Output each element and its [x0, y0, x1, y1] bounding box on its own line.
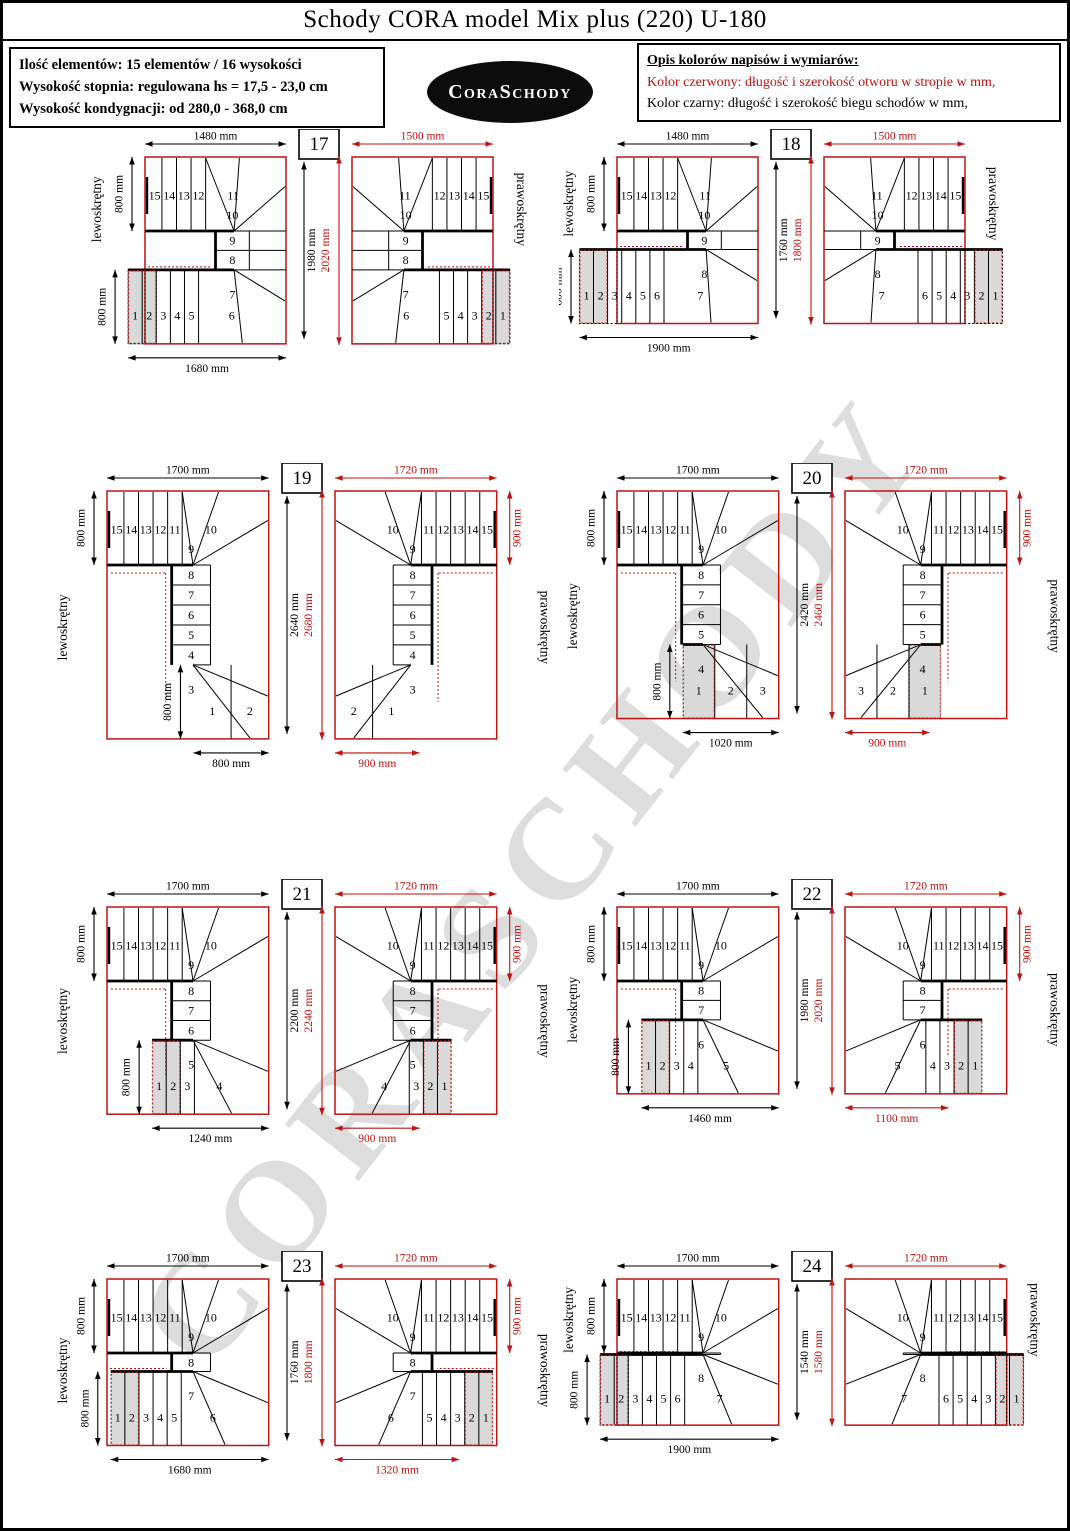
step-number: 8: [229, 253, 235, 267]
stair-group: 1514131211109812345671500 mmprawoskrętny: [824, 131, 1003, 324]
arrowhead: [771, 1263, 779, 1269]
dim-top-black: 1700 mm: [676, 881, 720, 893]
step-number: 14: [976, 522, 988, 536]
arrowhead: [336, 337, 342, 345]
arrowhead: [958, 141, 966, 147]
step-number: 12: [434, 188, 446, 202]
dim-right-red: 900 mm: [512, 925, 524, 963]
arrowhead: [845, 891, 853, 897]
step-number: 13: [140, 1310, 152, 1324]
arrowhead: [145, 141, 153, 147]
arrowhead: [335, 1457, 343, 1463]
step-number: 2: [247, 704, 253, 718]
step-number: 5: [640, 288, 646, 302]
stair-diagram-right-20: 1514131211109876541231720 mm900 mm900 mm…: [839, 463, 1065, 755]
dim-top-red: 1720 mm: [394, 1253, 438, 1265]
step-number: 3: [964, 288, 970, 302]
arrowhead: [319, 1439, 325, 1447]
step-number: 5: [936, 288, 942, 302]
stair-side-label-right: prawoskrętny: [514, 173, 529, 247]
stair-diagram-left-20: 1514131211109876541231700 mm800 mm800 mm…: [559, 463, 785, 755]
arrowhead: [284, 1102, 290, 1110]
step-number: 10: [872, 208, 884, 222]
step-number: 7: [410, 1389, 416, 1403]
step-number: 5: [171, 1410, 177, 1424]
step-number: 11: [679, 1310, 691, 1324]
arrowhead: [829, 712, 835, 720]
dim-left-top: 800 mm: [114, 175, 126, 213]
stair-group: 1514131211109871234561700 mm800 mm800 mm…: [55, 1253, 269, 1477]
step-number: 12: [437, 938, 449, 952]
step-number: 2: [728, 683, 734, 697]
dim-left-top: 800 mm: [76, 1297, 88, 1335]
dim-mid-black: 1540 mm: [799, 1330, 811, 1374]
stair-group: 1514131211109876512341720 mm900 mm900 mm…: [335, 881, 553, 1146]
step-number: 14: [976, 1310, 988, 1324]
stair-side-label-left: lewoskrętny: [561, 1287, 576, 1353]
arrowhead: [112, 270, 118, 278]
dim-top-black: 1700 mm: [676, 1253, 720, 1265]
winder-line: [825, 187, 876, 231]
arrowhead: [507, 1346, 513, 1354]
dim-right-red: 900 mm: [1022, 925, 1034, 963]
step-number: 10: [226, 208, 238, 222]
arrowhead: [284, 726, 290, 734]
arrowhead: [999, 891, 1007, 897]
step-number: 12: [154, 938, 166, 952]
step-number: 15: [111, 1310, 123, 1324]
stair-side-label-right: prawoskrętny: [538, 591, 553, 665]
step-number: 2: [978, 288, 984, 302]
arrowhead: [261, 750, 269, 756]
arrowhead: [601, 1346, 607, 1354]
arrowhead: [112, 336, 118, 344]
stair-diagram-left-17: 1514131211109871234561480 mm800 mm800 mm…: [87, 129, 292, 380]
dim-bottom-red: 900 mm: [358, 758, 396, 770]
winder-line: [892, 1355, 921, 1425]
stair-group: 1514131211109876543121700 mm800 mm800 mm…: [55, 465, 269, 770]
step-number: 11: [933, 522, 945, 536]
step-number: 6: [188, 608, 194, 622]
step-number: 12: [664, 938, 676, 952]
arrowhead: [352, 141, 360, 147]
step-number: 3: [410, 682, 416, 696]
dim-left-top: 800 mm: [586, 1297, 598, 1335]
stair-group: 1514131211109876123451720 mm900 mm1100 m…: [845, 881, 1063, 1125]
step-number: 8: [410, 984, 416, 998]
step-number: 1: [696, 683, 702, 697]
step-number: 4: [688, 1059, 694, 1073]
step-number: 6: [922, 288, 928, 302]
step-number: 15: [621, 188, 633, 202]
step-number: 7: [920, 1003, 926, 1017]
winder-line: [846, 1020, 921, 1051]
gray-entry-step: [166, 1040, 180, 1114]
arrowhead: [773, 311, 779, 319]
gray-entry-step: [989, 250, 1003, 324]
arrowhead: [486, 141, 494, 147]
stair-panel-20: 1514131211109876541231700 mm800 mm800 mm…: [559, 463, 1065, 755]
step-number: 4: [410, 648, 416, 662]
arrowhead: [845, 1263, 853, 1269]
step-number: 12: [437, 522, 449, 536]
gray-entry-step: [600, 1355, 614, 1426]
dim-top-red: 1720 mm: [904, 465, 948, 477]
step-number: 7: [698, 1003, 704, 1017]
step-number: 13: [650, 938, 662, 952]
arrowhead: [95, 1372, 101, 1380]
arrowhead: [999, 475, 1007, 481]
step-number: 4: [441, 1410, 447, 1424]
step-number: 4: [188, 648, 194, 662]
step-number: 15: [621, 522, 633, 536]
step-number: 5: [443, 309, 449, 323]
step-number: 3: [760, 683, 766, 697]
stair-side-label-right: prawoskrętny: [986, 167, 1001, 241]
gray-entry-step: [496, 270, 510, 344]
dim-left-bottom: 800 mm: [79, 1389, 91, 1427]
start-tick: [490, 177, 492, 214]
step-number: 13: [650, 522, 662, 536]
step-number: 2: [890, 683, 896, 697]
stair-diagram-right-19: 1514131211109876543121720 mm900 mm900 mm…: [329, 463, 555, 775]
arrowhead: [601, 224, 607, 232]
step-number: 4: [626, 288, 632, 302]
arrowhead: [489, 475, 497, 481]
step-number: 8: [410, 1355, 416, 1369]
step-number: 13: [140, 938, 152, 952]
start-tick: [1003, 927, 1005, 964]
dim-bottom-black: 800 mm: [212, 758, 250, 770]
mid-dims-20: 202420 mm2460 mm: [785, 463, 839, 755]
color-legend-box: Opis kolorów napisów i wymiarów: Kolor c…: [637, 43, 1061, 122]
gray-entry-step: [111, 1372, 125, 1446]
step-number: 15: [621, 938, 633, 952]
start-tick: [493, 511, 495, 548]
stair-side-label-left: lewoskrętny: [565, 977, 580, 1043]
step-number: 8: [188, 984, 194, 998]
winder-line: [706, 250, 757, 281]
step-number: 6: [410, 1023, 416, 1037]
step-number: 9: [403, 234, 409, 248]
dim-top-red: 1720 mm: [394, 881, 438, 893]
step-number: 7: [188, 1004, 194, 1018]
step-number: 5: [189, 309, 195, 323]
arrowhead: [279, 355, 287, 361]
dim-right-red: 900 mm: [512, 509, 524, 547]
winder-line: [846, 1309, 921, 1353]
step-number: 7: [410, 1004, 416, 1018]
step-number: 12: [154, 522, 166, 536]
step-number: 11: [169, 1310, 181, 1324]
mid-dims-22: 221980 mm2020 mm: [785, 879, 839, 1130]
arrowhead: [261, 1125, 269, 1131]
step-number: 3: [413, 1079, 419, 1093]
step-number: 12: [947, 938, 959, 952]
arrowhead: [601, 558, 607, 566]
step-number: 2: [351, 704, 357, 718]
arrowhead: [845, 475, 853, 481]
stair-diagram-right-21: 1514131211109876512341720 mm900 mm900 mm…: [329, 879, 555, 1151]
dim-right-red: 900 mm: [512, 1297, 524, 1335]
gray-entry-step: [125, 1372, 139, 1446]
arrowhead: [794, 1413, 800, 1421]
arrowhead: [667, 645, 673, 653]
step-number: 9: [875, 233, 881, 247]
stair-panel-22: 1514131211109876123451700 mm800 mm800 mm…: [559, 879, 1065, 1130]
dim-mid-red: 1800 mm: [792, 218, 804, 262]
arrowhead: [1017, 974, 1023, 982]
step-number: 4: [646, 1391, 652, 1405]
arrowhead: [193, 750, 201, 756]
panel-number: 23: [293, 1256, 312, 1277]
step-number: 9: [920, 958, 926, 972]
step-number: 1: [645, 1059, 651, 1073]
arrowhead: [412, 750, 420, 756]
winder-line: [871, 250, 876, 323]
arrowhead: [617, 141, 625, 147]
step-number: 5: [661, 1391, 667, 1405]
legend-heading: Opis kolorów napisów i wymiarów:: [647, 50, 1051, 72]
step-number: 1: [500, 309, 506, 323]
step-number: 12: [906, 188, 918, 202]
arrowhead: [1017, 907, 1023, 915]
stair-diagram-left-18: 1514131211109812345671480 mm800 mm800 mm…: [559, 129, 764, 360]
gray-entry-step: [437, 1040, 451, 1114]
winder-line: [825, 250, 876, 281]
step-number: 15: [111, 522, 123, 536]
step-number: 5: [920, 628, 926, 642]
step-number: 2: [958, 1059, 964, 1073]
step-number: 9: [410, 958, 416, 972]
stair-side-label-left: lewoskrętny: [89, 176, 104, 242]
stair-side-label-right: prawoskrętny: [1028, 1283, 1043, 1357]
gray-entry-step: [656, 1020, 670, 1094]
step-number: 15: [477, 188, 489, 202]
arrowhead: [751, 335, 759, 341]
step-number: 5: [957, 1391, 963, 1405]
step-number: 4: [157, 1410, 163, 1424]
sheet-header: Ilość elementów: 15 elementów / 16 wysok…: [3, 41, 1067, 141]
winder-line: [396, 270, 404, 343]
arrowhead: [683, 730, 691, 736]
arrowhead: [771, 1436, 779, 1442]
arrowhead: [771, 475, 779, 481]
step-number: 11: [679, 938, 691, 952]
gray-entry-step: [954, 1020, 968, 1094]
arrowhead: [107, 475, 115, 481]
arrowhead: [1017, 558, 1023, 566]
arrowhead: [641, 1105, 649, 1111]
winder-line: [885, 1020, 920, 1093]
winder-line: [336, 665, 411, 696]
arrowhead: [489, 1263, 497, 1269]
arrowhead: [107, 891, 115, 897]
step-number: 4: [920, 662, 926, 676]
step-number: 12: [947, 1310, 959, 1324]
arrowhead: [107, 1263, 115, 1269]
step-number: 5: [698, 628, 704, 642]
arrowhead: [261, 891, 269, 897]
step-number: 1: [156, 1079, 162, 1093]
step-number: 14: [125, 522, 137, 536]
stair-group: 1514131211109876123451700 mm800 mm800 mm…: [565, 881, 779, 1125]
step-number: 4: [950, 288, 956, 302]
stair-side-label-right: prawoskrętny: [538, 1334, 553, 1408]
arrowhead: [261, 475, 269, 481]
arrowhead: [829, 1419, 835, 1427]
step-number: 13: [452, 1310, 464, 1324]
step-number: 4: [698, 662, 704, 676]
panel-number: 22: [803, 884, 822, 905]
stair-group: 1514131211109812345671700 mm800 mm800 mm…: [561, 1253, 779, 1457]
winder-line: [234, 270, 285, 301]
step-number: 2: [129, 1410, 135, 1424]
stair-group: 1514131211109871234561720 mm900 mm1320 m…: [335, 1253, 553, 1477]
arrowhead: [845, 730, 853, 736]
drawing-sheet: Schody CORA model Mix plus (220) U-180 I…: [0, 0, 1070, 1531]
arrowhead: [601, 907, 607, 915]
dim-bottom-black: 1680 mm: [185, 363, 229, 375]
dim-mid-red: 2460 mm: [813, 583, 825, 627]
step-number: 9: [188, 542, 194, 556]
stair-side-label-left: lewoskrętny: [55, 1337, 70, 1403]
arrowhead: [452, 1457, 460, 1463]
step-number: 14: [635, 188, 647, 202]
step-number: 9: [698, 542, 704, 556]
step-number: 14: [466, 938, 478, 952]
dim-mid-red: 2020 mm: [813, 978, 825, 1022]
start-tick: [1003, 511, 1005, 548]
step-number: 6: [403, 309, 409, 323]
arrowhead: [829, 1087, 835, 1095]
gray-entry-step: [479, 1372, 493, 1446]
arrowhead: [617, 891, 625, 897]
step-number: 5: [188, 1058, 194, 1072]
winder-line: [703, 1355, 778, 1385]
arrowhead: [91, 907, 97, 915]
dim-top-red: 1720 mm: [904, 1253, 948, 1265]
arrowhead: [617, 1263, 625, 1269]
dim-bottom-red: 900 mm: [358, 1133, 396, 1145]
step-number: 9: [698, 1330, 704, 1344]
step-number: 8: [875, 267, 881, 281]
step-number: 2: [146, 309, 152, 323]
legend-red-line: Kolor czerwony: długość i szerokość otwo…: [647, 72, 1051, 94]
step-number: 6: [943, 1391, 949, 1405]
arrowhead: [319, 732, 325, 740]
winder-line: [703, 1020, 778, 1051]
step-number: 8: [920, 984, 926, 998]
step-number: 9: [410, 542, 416, 556]
dim-top-black: 1700 mm: [166, 881, 210, 893]
arrowhead: [335, 1125, 343, 1131]
step-number: 4: [458, 309, 464, 323]
step-number: 5: [410, 1058, 416, 1072]
step-number: 4: [971, 1391, 977, 1405]
winder-line: [234, 270, 242, 343]
arrowhead: [319, 1108, 325, 1116]
step-number: 1: [583, 288, 589, 302]
step-number: 13: [140, 522, 152, 536]
stair-group: 1514131211109812345671480 mm800 mm800 mm…: [559, 131, 758, 355]
start-tick: [493, 927, 495, 964]
arrowhead: [301, 162, 307, 170]
arrowhead: [626, 1086, 632, 1094]
arrowhead: [601, 974, 607, 982]
step-number: 2: [469, 1410, 475, 1424]
dim-left-top: 800 mm: [586, 509, 598, 547]
stair-group: 1514131211109812345671720 mmprawoskrętny: [845, 1253, 1043, 1426]
arrowhead: [507, 558, 513, 566]
gray-entry-step: [1010, 1355, 1024, 1426]
winder-line: [336, 521, 411, 565]
step-number: 8: [698, 984, 704, 998]
step-number: 9: [920, 1330, 926, 1344]
step-number: 13: [452, 522, 464, 536]
gray-entry-step: [683, 645, 715, 719]
arrowhead: [794, 1081, 800, 1089]
step-number: 9: [188, 1330, 194, 1344]
step-number: 14: [635, 522, 647, 536]
dim-right-red: 900 mm: [1022, 509, 1034, 547]
step-number: 6: [675, 1391, 681, 1405]
step-number: 12: [664, 188, 676, 202]
dim-top-red: 1720 mm: [904, 881, 948, 893]
winder-line: [354, 665, 411, 738]
winder-line: [703, 1355, 732, 1425]
arrowhead: [507, 907, 513, 915]
step-number: 13: [920, 188, 932, 202]
arrowhead: [178, 665, 184, 673]
arrowhead: [284, 1433, 290, 1441]
dim-left-bottom: 800 mm: [97, 288, 109, 326]
dim-mid-black: 1760 mm: [289, 1340, 301, 1384]
step-number: 14: [125, 938, 137, 952]
step-number: 1: [1014, 1391, 1020, 1405]
step-number: 2: [618, 1391, 624, 1405]
winder-line: [193, 1040, 232, 1113]
arrowhead: [507, 1279, 513, 1287]
step-number: 1: [993, 288, 999, 302]
stair-group: 1514131211109871234561480 mm800 mm800 mm…: [89, 131, 286, 375]
arrowhead: [507, 491, 513, 499]
stair-panel-17: 1514131211109871234561480 mm800 mm800 mm…: [87, 129, 551, 380]
step-number: 13: [962, 1310, 974, 1324]
gray-entry-step: [423, 1040, 437, 1114]
winder-line: [353, 270, 404, 301]
step-number: 11: [933, 938, 945, 952]
arrowhead: [284, 1284, 290, 1292]
winder-line: [706, 187, 757, 231]
gray-entry-step: [128, 270, 142, 344]
step-number: 4: [174, 309, 180, 323]
stair-diagram-right-24: 1514131211109812345671720 mmprawoskrętny: [839, 1251, 1065, 1462]
arrowhead: [261, 1263, 269, 1269]
arrowhead: [601, 491, 607, 499]
step-number: 11: [169, 938, 181, 952]
arrowhead: [617, 475, 625, 481]
winder-line: [336, 937, 411, 981]
step-number: 15: [481, 938, 493, 952]
winder-line: [336, 1040, 411, 1071]
stair-diagram-right-22: 1514131211109876123451720 mm900 mm1100 m…: [839, 879, 1065, 1130]
step-number: 13: [178, 188, 190, 202]
step-number: 7: [920, 588, 926, 602]
cora-schody-logo: CoraSchody: [427, 61, 593, 123]
step-number: 3: [455, 1410, 461, 1424]
dim-bottom-red: 1100 mm: [875, 1113, 918, 1125]
